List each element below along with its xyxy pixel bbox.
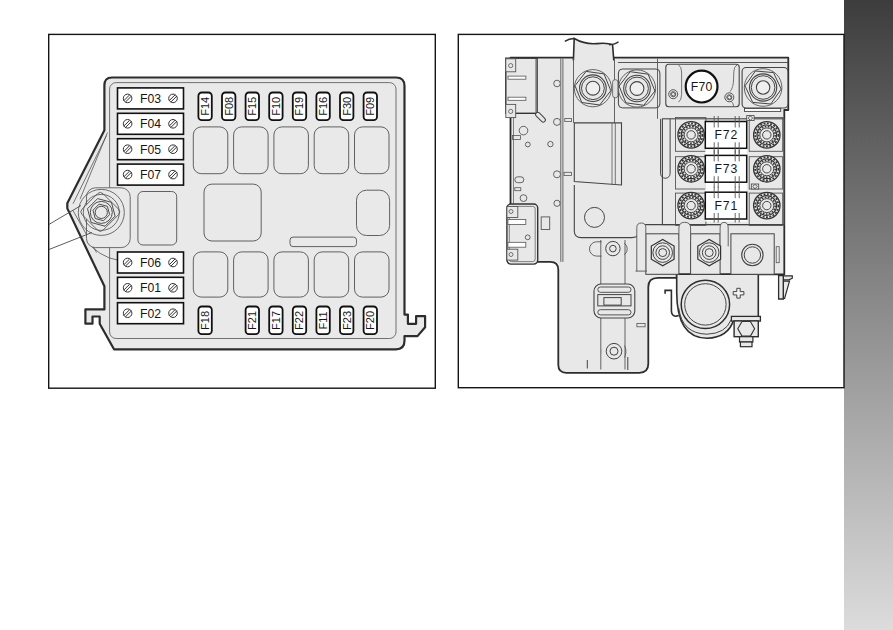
svg-text:F72: F72	[715, 128, 738, 142]
svg-text:F06: F06	[140, 256, 161, 270]
svg-text:F08: F08	[223, 97, 235, 116]
svg-text:F20: F20	[364, 311, 376, 330]
svg-text:F05: F05	[140, 143, 161, 157]
svg-text:F11: F11	[317, 311, 329, 329]
svg-text:F22: F22	[294, 311, 306, 330]
svg-text:F18: F18	[199, 311, 211, 330]
svg-text:F21: F21	[246, 311, 258, 330]
svg-text:F73: F73	[715, 162, 738, 176]
svg-text:F70: F70	[691, 80, 713, 94]
svg-text:F30: F30	[341, 97, 353, 116]
svg-text:F71: F71	[715, 199, 738, 213]
svg-text:F14: F14	[199, 97, 211, 116]
svg-text:F15: F15	[246, 97, 258, 116]
svg-text:F04: F04	[140, 117, 161, 131]
svg-text:F09: F09	[364, 97, 376, 116]
svg-text:F10: F10	[270, 97, 282, 116]
svg-text:F07: F07	[140, 168, 161, 182]
svg-text:F02: F02	[140, 307, 161, 321]
svg-text:F01: F01	[140, 281, 161, 295]
svg-text:F19: F19	[294, 97, 306, 116]
svg-text:F03: F03	[140, 92, 161, 106]
svg-text:F16: F16	[317, 97, 329, 116]
svg-text:F23: F23	[341, 311, 353, 330]
svg-text:F17: F17	[270, 311, 282, 330]
